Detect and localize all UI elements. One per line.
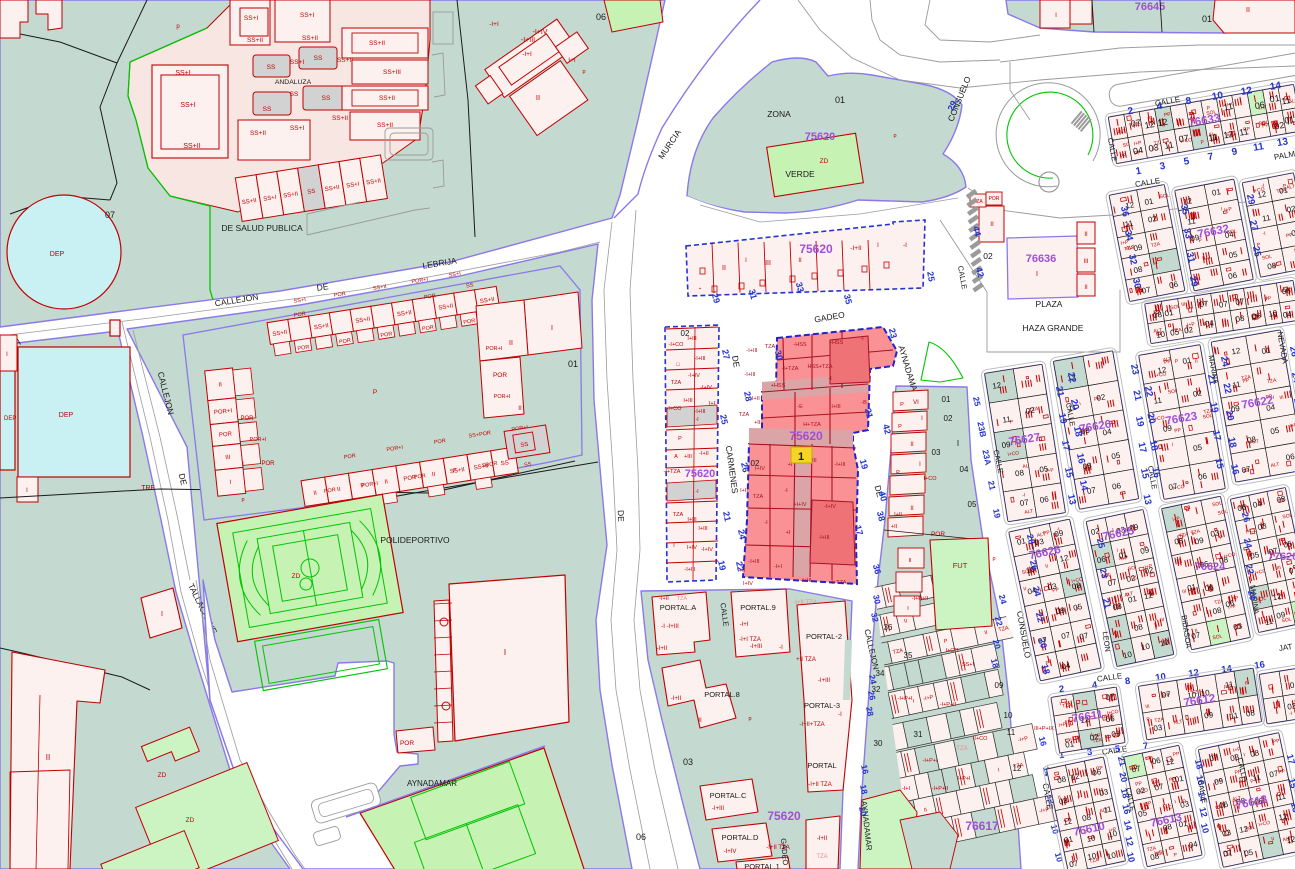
svg-text:ZD: ZD <box>158 772 167 779</box>
svg-text:II: II <box>910 442 914 448</box>
svg-text:III+P+IX: III+P+IX <box>1034 726 1054 732</box>
svg-text:13: 13 <box>1065 493 1078 506</box>
svg-text:17: 17 <box>1210 429 1223 442</box>
svg-text:I+III: I+III <box>683 398 693 404</box>
svg-text:76617: 76617 <box>965 819 999 833</box>
svg-text:DEP: DEP <box>4 416 16 422</box>
svg-text:II: II <box>46 753 50 762</box>
svg-text:03: 03 <box>1148 142 1160 154</box>
svg-text:I+P+I: I+P+I <box>957 776 971 782</box>
svg-text:SS+II: SS+II <box>302 35 318 42</box>
svg-text:III: III <box>1083 259 1088 265</box>
svg-text:-I: -I <box>695 417 699 423</box>
svg-text:-I+IV: -I+IV <box>701 547 713 553</box>
svg-text:07: 07 <box>1130 117 1142 129</box>
svg-text:02: 02 <box>1287 701 1295 711</box>
svg-text:75620: 75620 <box>789 429 823 443</box>
svg-text:SS+I: SS+I <box>175 70 190 77</box>
svg-text:II: II <box>910 506 914 512</box>
svg-text:1: 1 <box>798 451 804 463</box>
svg-text:-I+TZA: -I+TZA <box>782 366 799 372</box>
svg-text:03: 03 <box>932 448 941 457</box>
svg-text:-I: -I <box>860 336 864 342</box>
svg-text:+HSS: +HSS <box>771 383 786 389</box>
svg-text:PORTAL.8: PORTAL.8 <box>704 690 740 699</box>
svg-text:01: 01 <box>1289 680 1295 690</box>
svg-text:+HSS: +HSS <box>829 340 844 346</box>
svg-text:07: 07 <box>105 210 115 220</box>
svg-text:+III: +III <box>754 420 762 426</box>
svg-text:PLAZA: PLAZA <box>1036 299 1063 309</box>
svg-text:-I -I+III: -I -I+III <box>661 624 679 630</box>
svg-text:02: 02 <box>944 414 953 423</box>
svg-text:-I+II TZA: -I+II TZA <box>808 782 831 788</box>
svg-text:11: 11 <box>1207 132 1218 143</box>
svg-text:+I+IV: +I+IV <box>793 502 806 508</box>
svg-text:POR: POR <box>931 531 945 538</box>
svg-text:05: 05 <box>968 500 977 509</box>
svg-text:I: I <box>1055 12 1057 19</box>
svg-text:I: I <box>504 648 506 657</box>
svg-text:SS+II: SS+II <box>379 95 395 102</box>
svg-text:TZA: TZA <box>816 854 827 860</box>
svg-text:TZA: TZA <box>671 380 682 386</box>
svg-text:-I: -I <box>903 242 907 249</box>
svg-text:-I: -I <box>838 712 842 718</box>
svg-text:-I+III: -I+III <box>834 462 846 468</box>
svg-text:-I+I: -I+I <box>522 51 532 58</box>
svg-text:02: 02 <box>681 329 690 338</box>
svg-text:II: II <box>908 558 912 564</box>
svg-text:A: A <box>674 454 678 460</box>
svg-text:P: P <box>896 470 900 476</box>
svg-text:TZA: TZA <box>677 596 688 602</box>
svg-text:P: P <box>373 389 377 396</box>
svg-text:01: 01 <box>1202 14 1212 24</box>
svg-text:ANDALUZA: ANDALUZA <box>275 79 312 86</box>
svg-text:02: 02 <box>983 251 993 261</box>
svg-text:TZA: TZA <box>739 412 750 418</box>
svg-text:36: 36 <box>1118 205 1131 218</box>
svg-text:-I+III: -I+III <box>750 644 763 650</box>
svg-text:12: 12 <box>1223 129 1235 141</box>
svg-text:12: 12 <box>1157 117 1169 129</box>
svg-text:SS+II: SS+II <box>247 37 263 44</box>
svg-text:29: 29 <box>1187 275 1200 288</box>
svg-text:POR: POR <box>240 416 254 422</box>
svg-text:p: p <box>748 716 751 722</box>
svg-text:I: I <box>161 611 163 618</box>
svg-text:TZA: TZA <box>753 494 764 500</box>
svg-text:36: 36 <box>884 623 893 632</box>
svg-text:P: P <box>898 424 902 430</box>
svg-text:76636: 76636 <box>1026 253 1057 265</box>
svg-text:20: 20 <box>1223 409 1236 422</box>
svg-text:PORTAL-2: PORTAL-2 <box>806 632 842 641</box>
svg-text:-I: -I <box>779 645 783 651</box>
svg-text:II: II <box>990 221 994 228</box>
svg-text:II: II <box>722 265 726 272</box>
svg-text:-I+IV: -I+IV <box>724 849 737 855</box>
svg-text:-I+II: -I+II <box>657 646 668 652</box>
svg-text:SS+III: SS+III <box>383 69 401 76</box>
svg-text:25: 25 <box>718 413 730 425</box>
svg-text:I: I <box>957 439 959 448</box>
svg-text:I+IV: I+IV <box>687 545 697 551</box>
svg-text:-I+III: -I+III <box>746 348 758 354</box>
svg-text:75620: 75620 <box>805 131 836 143</box>
svg-text:30: 30 <box>874 739 883 748</box>
svg-text:▪: ▪ <box>699 286 701 292</box>
svg-text:I+CO: I+CO <box>924 476 938 482</box>
svg-text:01: 01 <box>1269 93 1281 105</box>
svg-text:I+I: I+I <box>568 57 576 64</box>
svg-text:-I+I: -I+I <box>902 786 911 792</box>
svg-text:DEP: DEP <box>59 412 74 419</box>
svg-text:PORTAL-3: PORTAL-3 <box>804 701 840 710</box>
svg-text:H+TZA: H+TZA <box>803 422 821 428</box>
svg-text:12: 12 <box>1144 119 1156 131</box>
svg-text:I+III: I+III <box>698 526 708 532</box>
svg-text:16: 16 <box>1228 463 1241 476</box>
svg-text:-I+CO: -I+CO <box>973 736 989 742</box>
svg-text:17: 17 <box>1135 441 1148 454</box>
svg-text:p: p <box>992 556 995 562</box>
svg-text:PORTAL.1: PORTAL.1 <box>744 862 780 869</box>
svg-text:75620: 75620 <box>685 468 716 480</box>
svg-text:11: 11 <box>1281 95 1292 106</box>
svg-text:19: 19 <box>1207 401 1220 414</box>
svg-text:VI: VI <box>913 400 919 406</box>
svg-text:p: p <box>582 69 585 75</box>
svg-text:DE: DE <box>316 281 330 293</box>
svg-text:20: 20 <box>1144 412 1157 425</box>
svg-text:11: 11 <box>1223 101 1234 112</box>
svg-text:II: II <box>1084 285 1088 291</box>
svg-text:27: 27 <box>720 348 732 360</box>
svg-text:I+II: I+II <box>740 488 748 494</box>
svg-text:06: 06 <box>596 12 606 22</box>
svg-text:ZONA: ZONA <box>767 109 791 119</box>
svg-text:18: 18 <box>1147 439 1160 452</box>
svg-text:06: 06 <box>636 832 646 842</box>
svg-text:POR: POR <box>493 372 507 379</box>
svg-text:-I+III: -I+III <box>694 356 706 362</box>
svg-text:-I+III: -I+III <box>818 535 830 541</box>
svg-text:I+I: I+I <box>709 401 716 407</box>
svg-text:-I+P+II: -I+P+II <box>912 596 929 602</box>
svg-text:-I+I: -I+I <box>774 564 783 570</box>
svg-text:02: 02 <box>751 459 760 468</box>
svg-text:16: 16 <box>1074 452 1087 465</box>
svg-text:-I: -I <box>828 376 832 382</box>
svg-text:P: P <box>900 402 904 408</box>
svg-text:35: 35 <box>904 651 913 660</box>
svg-text:04: 04 <box>960 465 969 474</box>
svg-text:25: 25 <box>925 271 937 283</box>
svg-text:SS+II: SS+II <box>337 57 353 64</box>
svg-text:75620: 75620 <box>799 242 833 256</box>
svg-text:33: 33 <box>1181 227 1194 240</box>
svg-text:11: 11 <box>1163 139 1174 150</box>
svg-text:TZA: TZA <box>765 344 776 350</box>
svg-text:PORTAL: PORTAL <box>807 761 836 770</box>
svg-text:11: 11 <box>1007 728 1016 737</box>
svg-text:21: 21 <box>721 510 733 522</box>
svg-text:SS: SS <box>524 461 533 468</box>
svg-text:SS+I: SS+I <box>962 662 975 668</box>
svg-text:SS: SS <box>314 55 323 62</box>
svg-text:32: 32 <box>1126 253 1139 266</box>
svg-text:SS: SS <box>500 460 509 467</box>
svg-text:-I: -I <box>695 489 699 495</box>
svg-text:17: 17 <box>1059 439 1072 452</box>
svg-text:+II TZA: +II TZA <box>796 657 816 663</box>
svg-text:06: 06 <box>1254 100 1266 112</box>
svg-text:01: 01 <box>568 359 578 369</box>
svg-text:PORTAL.9: PORTAL.9 <box>740 603 776 612</box>
svg-text:SS: SS <box>290 91 299 98</box>
svg-text:-E: -E <box>797 404 803 410</box>
svg-text:76624: 76624 <box>1195 561 1226 573</box>
svg-text:FUT: FUT <box>953 561 968 570</box>
svg-text:TZA: TZA <box>673 512 684 518</box>
svg-text:p: p <box>893 133 896 139</box>
svg-text:-I+IV: -I+IV <box>533 29 548 36</box>
svg-text:11: 11 <box>1238 126 1249 137</box>
svg-text:77620: 77620 <box>1268 551 1295 563</box>
svg-text:10: 10 <box>1004 711 1013 720</box>
svg-text:29: 29 <box>1244 193 1257 206</box>
svg-text:-I+IV: -I+IV <box>824 504 836 510</box>
svg-text:TRF: TRF <box>141 485 155 492</box>
svg-text:I+IV: I+IV <box>743 581 753 587</box>
svg-text:I+II: I+II <box>894 512 902 518</box>
svg-text:HSS+TZA: HSS+TZA <box>808 364 833 370</box>
svg-text:POR+I: POR+I <box>250 437 267 443</box>
svg-text:I+III: I+III <box>687 517 697 523</box>
svg-text:-I+II: -I+II <box>817 836 828 842</box>
svg-text:VERDE: VERDE <box>785 169 815 179</box>
svg-text:-I+II: -I+II <box>850 245 862 252</box>
svg-text:-I+IV: -I+IV <box>700 385 712 391</box>
svg-text:POR+I: POR+I <box>486 346 503 352</box>
svg-text:II: II <box>518 405 522 412</box>
svg-text:ZD: ZD <box>186 817 195 824</box>
svg-text:SS: SS <box>267 64 276 71</box>
svg-text:SS+I: SS+I <box>290 59 304 66</box>
svg-text:SS: SS <box>520 442 529 449</box>
svg-text:-I+III: -I+III <box>712 806 725 812</box>
svg-text:-I+II: -I+II <box>699 451 709 457</box>
svg-text:SS+II: SS+II <box>369 40 385 47</box>
svg-text:-I+P+I: -I+P+I <box>898 696 913 702</box>
svg-text:12: 12 <box>1013 764 1022 773</box>
svg-text:-I+TZA: -I+TZA <box>830 580 847 586</box>
svg-text:-I+III: -I+III <box>744 372 756 378</box>
svg-text:DE: DE <box>616 510 626 522</box>
svg-text:II: II <box>1246 7 1250 14</box>
svg-text:-I+P+II: -I+P+II <box>932 786 949 792</box>
svg-text:PORTAL.A: PORTAL.A <box>660 603 696 612</box>
svg-text:+I: +I <box>786 530 791 536</box>
svg-text:+II: +II <box>891 524 898 530</box>
svg-text:DE SALUD PUBLICA: DE SALUD PUBLICA <box>221 223 303 233</box>
svg-text:-I+III: -I+III <box>800 578 812 584</box>
svg-text:-B: -B <box>861 400 867 406</box>
svg-text:SS: SS <box>466 282 475 289</box>
svg-text:II: II <box>536 93 540 102</box>
svg-text:JAT: JAT <box>1278 642 1293 653</box>
svg-text:HAZA GRANDE: HAZA GRANDE <box>1023 323 1084 333</box>
svg-text:POR+I: POR+I <box>494 394 511 400</box>
svg-text:II: II <box>698 717 702 724</box>
svg-text:-I+III: -I+III <box>818 678 831 684</box>
svg-text:01: 01 <box>835 95 845 105</box>
svg-text:I: I <box>1036 271 1038 278</box>
svg-text:01: 01 <box>942 395 951 404</box>
svg-text:POR: POR <box>261 461 275 467</box>
svg-text:SS+II: SS+II <box>332 115 348 122</box>
svg-text:+III: +III <box>684 454 692 460</box>
svg-text:II: II <box>1084 232 1088 238</box>
svg-text:-I+I: -I+I <box>740 622 749 628</box>
svg-text:-I+III: -I+III <box>521 37 535 44</box>
svg-text:27: 27 <box>1247 219 1260 232</box>
svg-text:-I+I: -I+I <box>489 21 499 28</box>
svg-text:-I+IV: -I+IV <box>688 373 700 379</box>
svg-text:-I: -I <box>784 488 788 494</box>
svg-text:-I+III: -I+III <box>748 559 760 565</box>
svg-text:III: III <box>225 455 231 462</box>
svg-text:II: II <box>798 258 802 264</box>
svg-text:ZD: ZD <box>820 158 829 165</box>
svg-text:POR: POR <box>400 740 414 747</box>
svg-text:II: II <box>509 340 513 347</box>
svg-text:SS+I: SS+I <box>244 15 258 22</box>
svg-text:02: 02 <box>1286 204 1295 215</box>
svg-text:18: 18 <box>1225 436 1238 449</box>
svg-text:-I+III: -I+III <box>684 567 696 573</box>
svg-text:12: 12 <box>1286 834 1295 845</box>
svg-text:09: 09 <box>995 681 1004 690</box>
svg-text:SS+II: SS+II <box>250 130 266 137</box>
svg-text:TZA: TZA <box>956 746 967 752</box>
svg-text:-HSS: -HSS <box>793 342 806 348</box>
svg-text:SS: SS <box>322 95 331 102</box>
svg-text:07: 07 <box>1178 133 1190 145</box>
svg-text:-I+P+I: -I+P+I <box>923 758 938 764</box>
svg-text:ZD: ZD <box>292 573 301 580</box>
svg-text:22: 22 <box>1142 385 1155 398</box>
svg-text:-I+P+II: -I+P+II <box>940 702 957 708</box>
svg-text:SS+I: SS+I <box>180 102 195 109</box>
svg-text:p: p <box>241 497 244 503</box>
svg-text:I+CO: I+CO <box>946 648 960 654</box>
svg-text:I: I <box>551 325 553 332</box>
svg-text:07: 07 <box>1288 565 1295 576</box>
svg-text:31: 31 <box>914 730 923 739</box>
svg-text:23: 23 <box>1128 363 1141 376</box>
svg-text:-I+CO: -I+CO <box>669 342 685 348</box>
svg-text:04: 04 <box>1291 227 1295 238</box>
svg-text:POLIDEPORTIVO: POLIDEPORTIVO <box>380 535 450 545</box>
svg-text:-I+II: -I+II <box>671 696 682 702</box>
svg-text:SS: SS <box>263 106 272 113</box>
svg-text:-I+CO: -I+CO <box>667 406 683 412</box>
svg-text:04: 04 <box>1132 145 1144 157</box>
svg-text:13: 13 <box>1140 493 1153 506</box>
svg-text:-I+II+TZA: -I+II+TZA <box>799 722 824 728</box>
svg-text:DEP: DEP <box>50 251 65 258</box>
svg-text:-I+TZA: -I+TZA <box>664 469 681 475</box>
svg-text:19: 19 <box>1133 415 1146 428</box>
svg-text:-I+III: -I+III <box>694 409 706 415</box>
svg-text:P: P <box>678 436 682 442</box>
svg-text:30: 30 <box>1130 277 1143 290</box>
svg-text:03: 03 <box>683 757 693 767</box>
svg-text:22: 22 <box>1220 382 1233 395</box>
svg-text:SS+II: SS+II <box>183 143 200 150</box>
svg-text:+II: +II <box>739 568 746 574</box>
svg-text:III: III <box>765 260 771 267</box>
svg-text:-I+I TZA: -I+I TZA <box>739 637 761 643</box>
svg-text:I+III: I+III <box>831 404 841 410</box>
svg-text:22: 22 <box>1065 371 1078 384</box>
svg-text:PORTAL.D: PORTAL.D <box>722 833 759 842</box>
svg-text:SS+I: SS+I <box>290 125 304 132</box>
svg-text:-I+II: -I+II <box>659 596 669 602</box>
svg-text:SS: SS <box>307 189 316 196</box>
svg-text:75620: 75620 <box>767 809 801 823</box>
svg-text:19: 19 <box>716 559 728 571</box>
svg-text:SS+I: SS+I <box>300 12 314 19</box>
svg-text:01: 01 <box>1284 114 1295 126</box>
svg-text:18: 18 <box>1071 425 1084 438</box>
svg-text:-I: -I <box>764 520 768 526</box>
svg-text:-I+II: -I+II <box>750 396 760 402</box>
svg-text:AYNADAMAR: AYNADAMAR <box>407 779 457 788</box>
svg-text:02: 02 <box>1274 120 1286 132</box>
svg-text:POR: POR <box>989 196 1000 202</box>
svg-text:06: 06 <box>1285 452 1295 463</box>
svg-text:PORTAL.C: PORTAL.C <box>710 791 747 800</box>
